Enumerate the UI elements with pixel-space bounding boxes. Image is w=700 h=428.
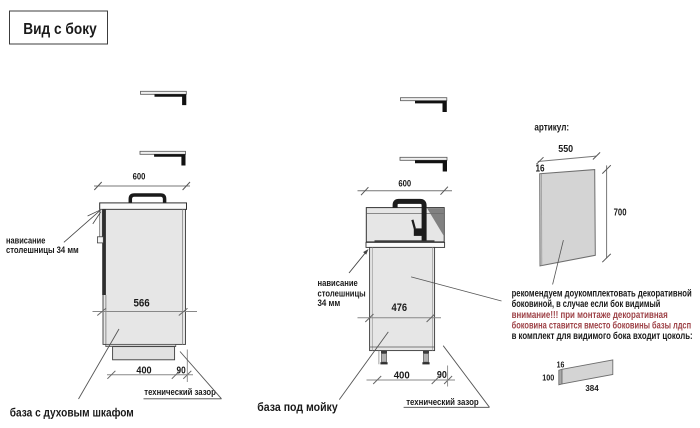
svg-text:600: 600	[398, 178, 411, 188]
svg-text:34 мм: 34 мм	[318, 298, 341, 309]
svg-text:90: 90	[437, 370, 447, 381]
svg-text:база под мойку: база под мойку	[257, 401, 338, 414]
svg-text:нависание: нависание	[318, 278, 358, 289]
svg-text:технический зазор: технический зазор	[406, 396, 479, 407]
svg-text:боковина ставится вместо боков: боковина ставится вместо боковины базы л…	[512, 320, 691, 332]
svg-text:база с духовым шкафом: база с духовым шкафом	[10, 406, 134, 419]
svg-text:столешницы 34 мм: столешницы 34 мм	[6, 245, 79, 256]
svg-text:700: 700	[614, 207, 627, 218]
svg-text:рекомендуем доукомплектовать д: рекомендуем доукомплектовать декоративно…	[512, 288, 692, 299]
svg-text:в комплект для видимого бока в: в комплект для видимого бока входит цоко…	[512, 330, 693, 342]
svg-text:100: 100	[542, 373, 554, 383]
svg-text:внимание!!! при монтаже декора: внимание!!! при монтаже декоративная	[512, 310, 668, 321]
svg-text:боковиной, в случае если бок в: боковиной, в случае если бок видимый	[512, 298, 661, 310]
svg-text:Вид с боку: Вид с боку	[23, 21, 97, 38]
svg-text:384: 384	[585, 383, 599, 393]
svg-text:566: 566	[133, 298, 149, 310]
svg-text:16: 16	[557, 359, 565, 369]
svg-text:476: 476	[392, 302, 408, 314]
svg-text:600: 600	[133, 171, 146, 181]
svg-text:550: 550	[558, 144, 573, 155]
svg-text:технический зазор: технический зазор	[144, 386, 216, 397]
svg-text:артикул:: артикул:	[534, 123, 569, 134]
svg-text:16: 16	[536, 164, 546, 175]
